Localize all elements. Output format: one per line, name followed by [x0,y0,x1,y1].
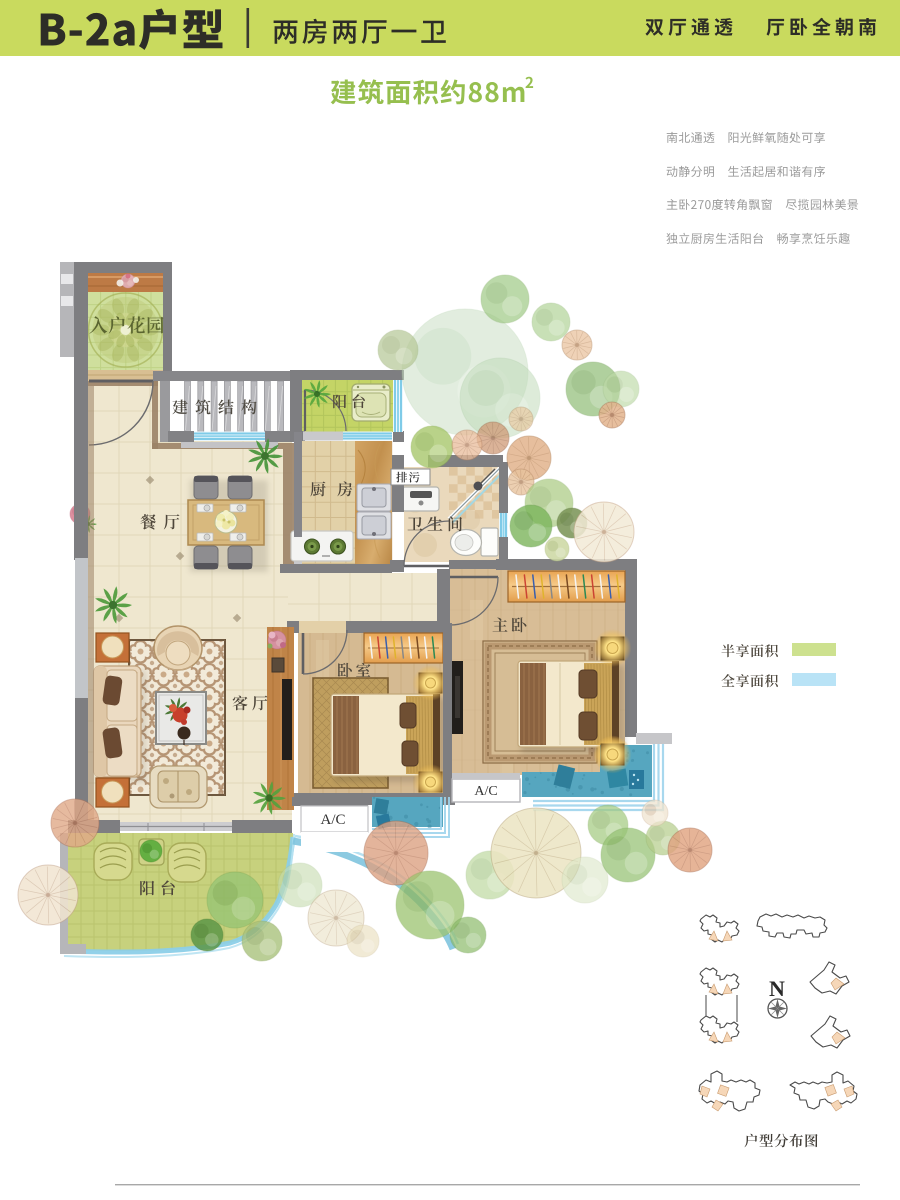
svg-text:A/C: A/C [474,784,497,799]
svg-text:A/C: A/C [320,812,345,828]
svg-text:N: N [769,976,785,1001]
